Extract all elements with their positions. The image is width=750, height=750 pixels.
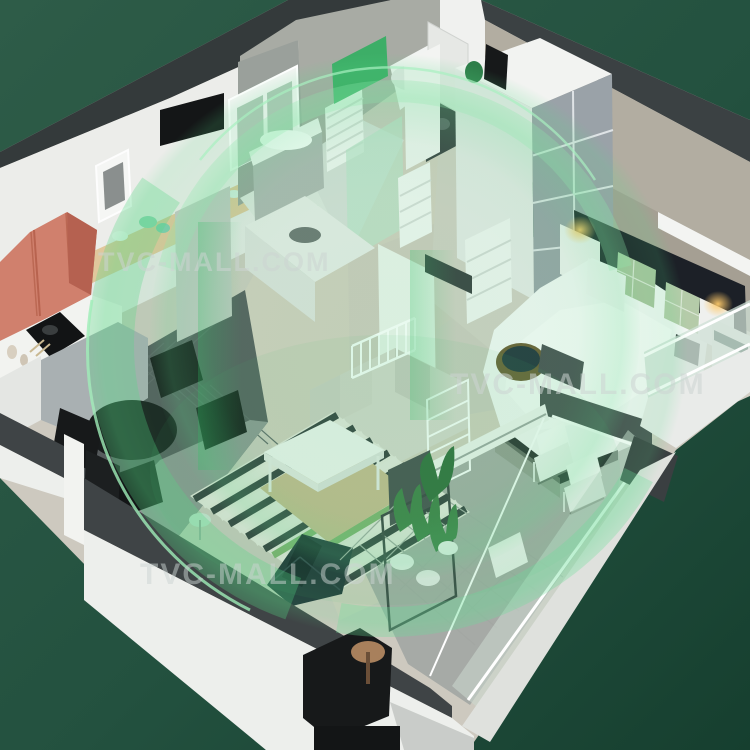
svg-text:TVC-MALL.COM: TVC-MALL.COM — [140, 558, 396, 591]
svg-text:TVC-MALL.COM: TVC-MALL.COM — [450, 368, 706, 401]
svg-text:TVC-MALL.COM: TVC-MALL.COM — [98, 247, 330, 277]
